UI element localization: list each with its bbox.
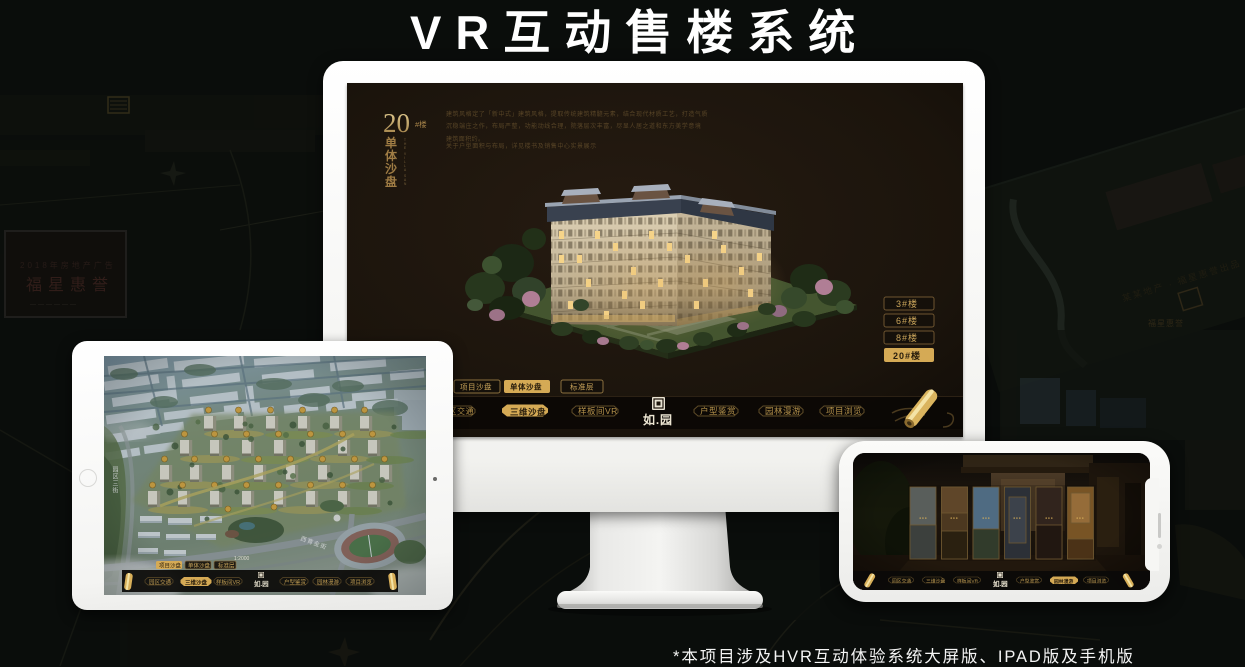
svg-text:如.园: 如.园	[254, 579, 269, 588]
svg-text:体: 体	[385, 148, 398, 163]
svg-text:建筑风格定了「新中式」建筑风格，提取传统建筑精髓元素，结合现: 建筑风格定了「新中式」建筑风格，提取传统建筑精髓元素，结合现代材质工艺，打造气质	[446, 110, 708, 118]
svg-text:三维沙盘: 三维沙盘	[510, 407, 546, 417]
svg-text:福星惠誉: 福星惠誉	[1148, 318, 1184, 328]
svg-text:样板间VR: 样板间VR	[578, 406, 618, 416]
svg-text:3#楼: 3#楼	[896, 298, 918, 309]
svg-text:户型鉴赏: 户型鉴赏	[700, 406, 736, 416]
svg-text:2018年房地产广告: 2018年房地产广告	[20, 260, 116, 270]
svg-text:标准层: 标准层	[218, 562, 235, 570]
svg-text:沙: 沙	[385, 162, 397, 176]
svg-text:单: 单	[385, 135, 397, 150]
svg-text:三维沙盘: 三维沙盘	[185, 579, 208, 587]
svg-text:如.园: 如.园	[993, 579, 1008, 588]
svg-text:园区交通: 园区交通	[892, 578, 911, 585]
svg-text:户型鉴赏: 户型鉴赏	[284, 578, 307, 586]
svg-text:1:2000: 1:2000	[234, 556, 250, 562]
svg-text:园区交通: 园区交通	[149, 578, 172, 586]
svg-text:建筑面积约。: 建筑面积约。	[446, 135, 484, 143]
svg-text:项目浏览: 项目浏览	[826, 406, 862, 416]
svg-text:盘: 盘	[385, 174, 397, 189]
svg-text:6#楼: 6#楼	[896, 315, 918, 326]
svg-text:8#楼: 8#楼	[896, 332, 918, 343]
svg-text:关于户型面积与布局，详见楼书及销售中心实景展示: 关于户型面积与布局，详见楼书及销售中心实景展示	[446, 142, 597, 150]
svg-text:样板间VR: 样板间VR	[957, 578, 979, 585]
svg-text:项目沙盘: 项目沙盘	[159, 562, 182, 570]
svg-text:三维沙盘: 三维沙盘	[926, 578, 945, 585]
svg-text:20: 20	[383, 108, 410, 138]
svg-text:沉稳端庄之作，布局严整，功能动线合理，院落层次丰富，尽显人居: 沉稳端庄之作，布局严整，功能动线合理，院落层次丰富，尽显人居之道和东方美学意境	[446, 122, 701, 130]
svg-text:单体沙盘: 单体沙盘	[510, 382, 542, 392]
svg-text:户型鉴赏: 户型鉴赏	[1020, 578, 1039, 585]
svg-text:样板间VR: 样板间VR	[216, 578, 240, 586]
svg-text:——————: ——————	[30, 302, 78, 308]
svg-text:福星惠誉: 福星惠誉	[26, 276, 114, 294]
svg-text:项目浏览: 项目浏览	[1087, 578, 1106, 585]
svg-text:如.园: 如.园	[643, 412, 673, 427]
svg-text:项目浏览: 项目浏览	[350, 578, 373, 586]
svg-text:园林漫游: 园林漫游	[317, 578, 340, 586]
svg-text:E: E	[404, 146, 406, 150]
svg-text:标准层: 标准层	[570, 382, 594, 392]
svg-text:20#楼: 20#楼	[893, 350, 921, 361]
svg-text:项目沙盘: 项目沙盘	[460, 382, 492, 392]
svg-text:园林漫游: 园林漫游	[765, 406, 801, 416]
svg-text:园林漫游: 园林漫游	[1054, 578, 1073, 585]
svg-text:单体沙盘: 单体沙盘	[188, 562, 211, 570]
svg-text:#楼: #楼	[415, 119, 427, 129]
